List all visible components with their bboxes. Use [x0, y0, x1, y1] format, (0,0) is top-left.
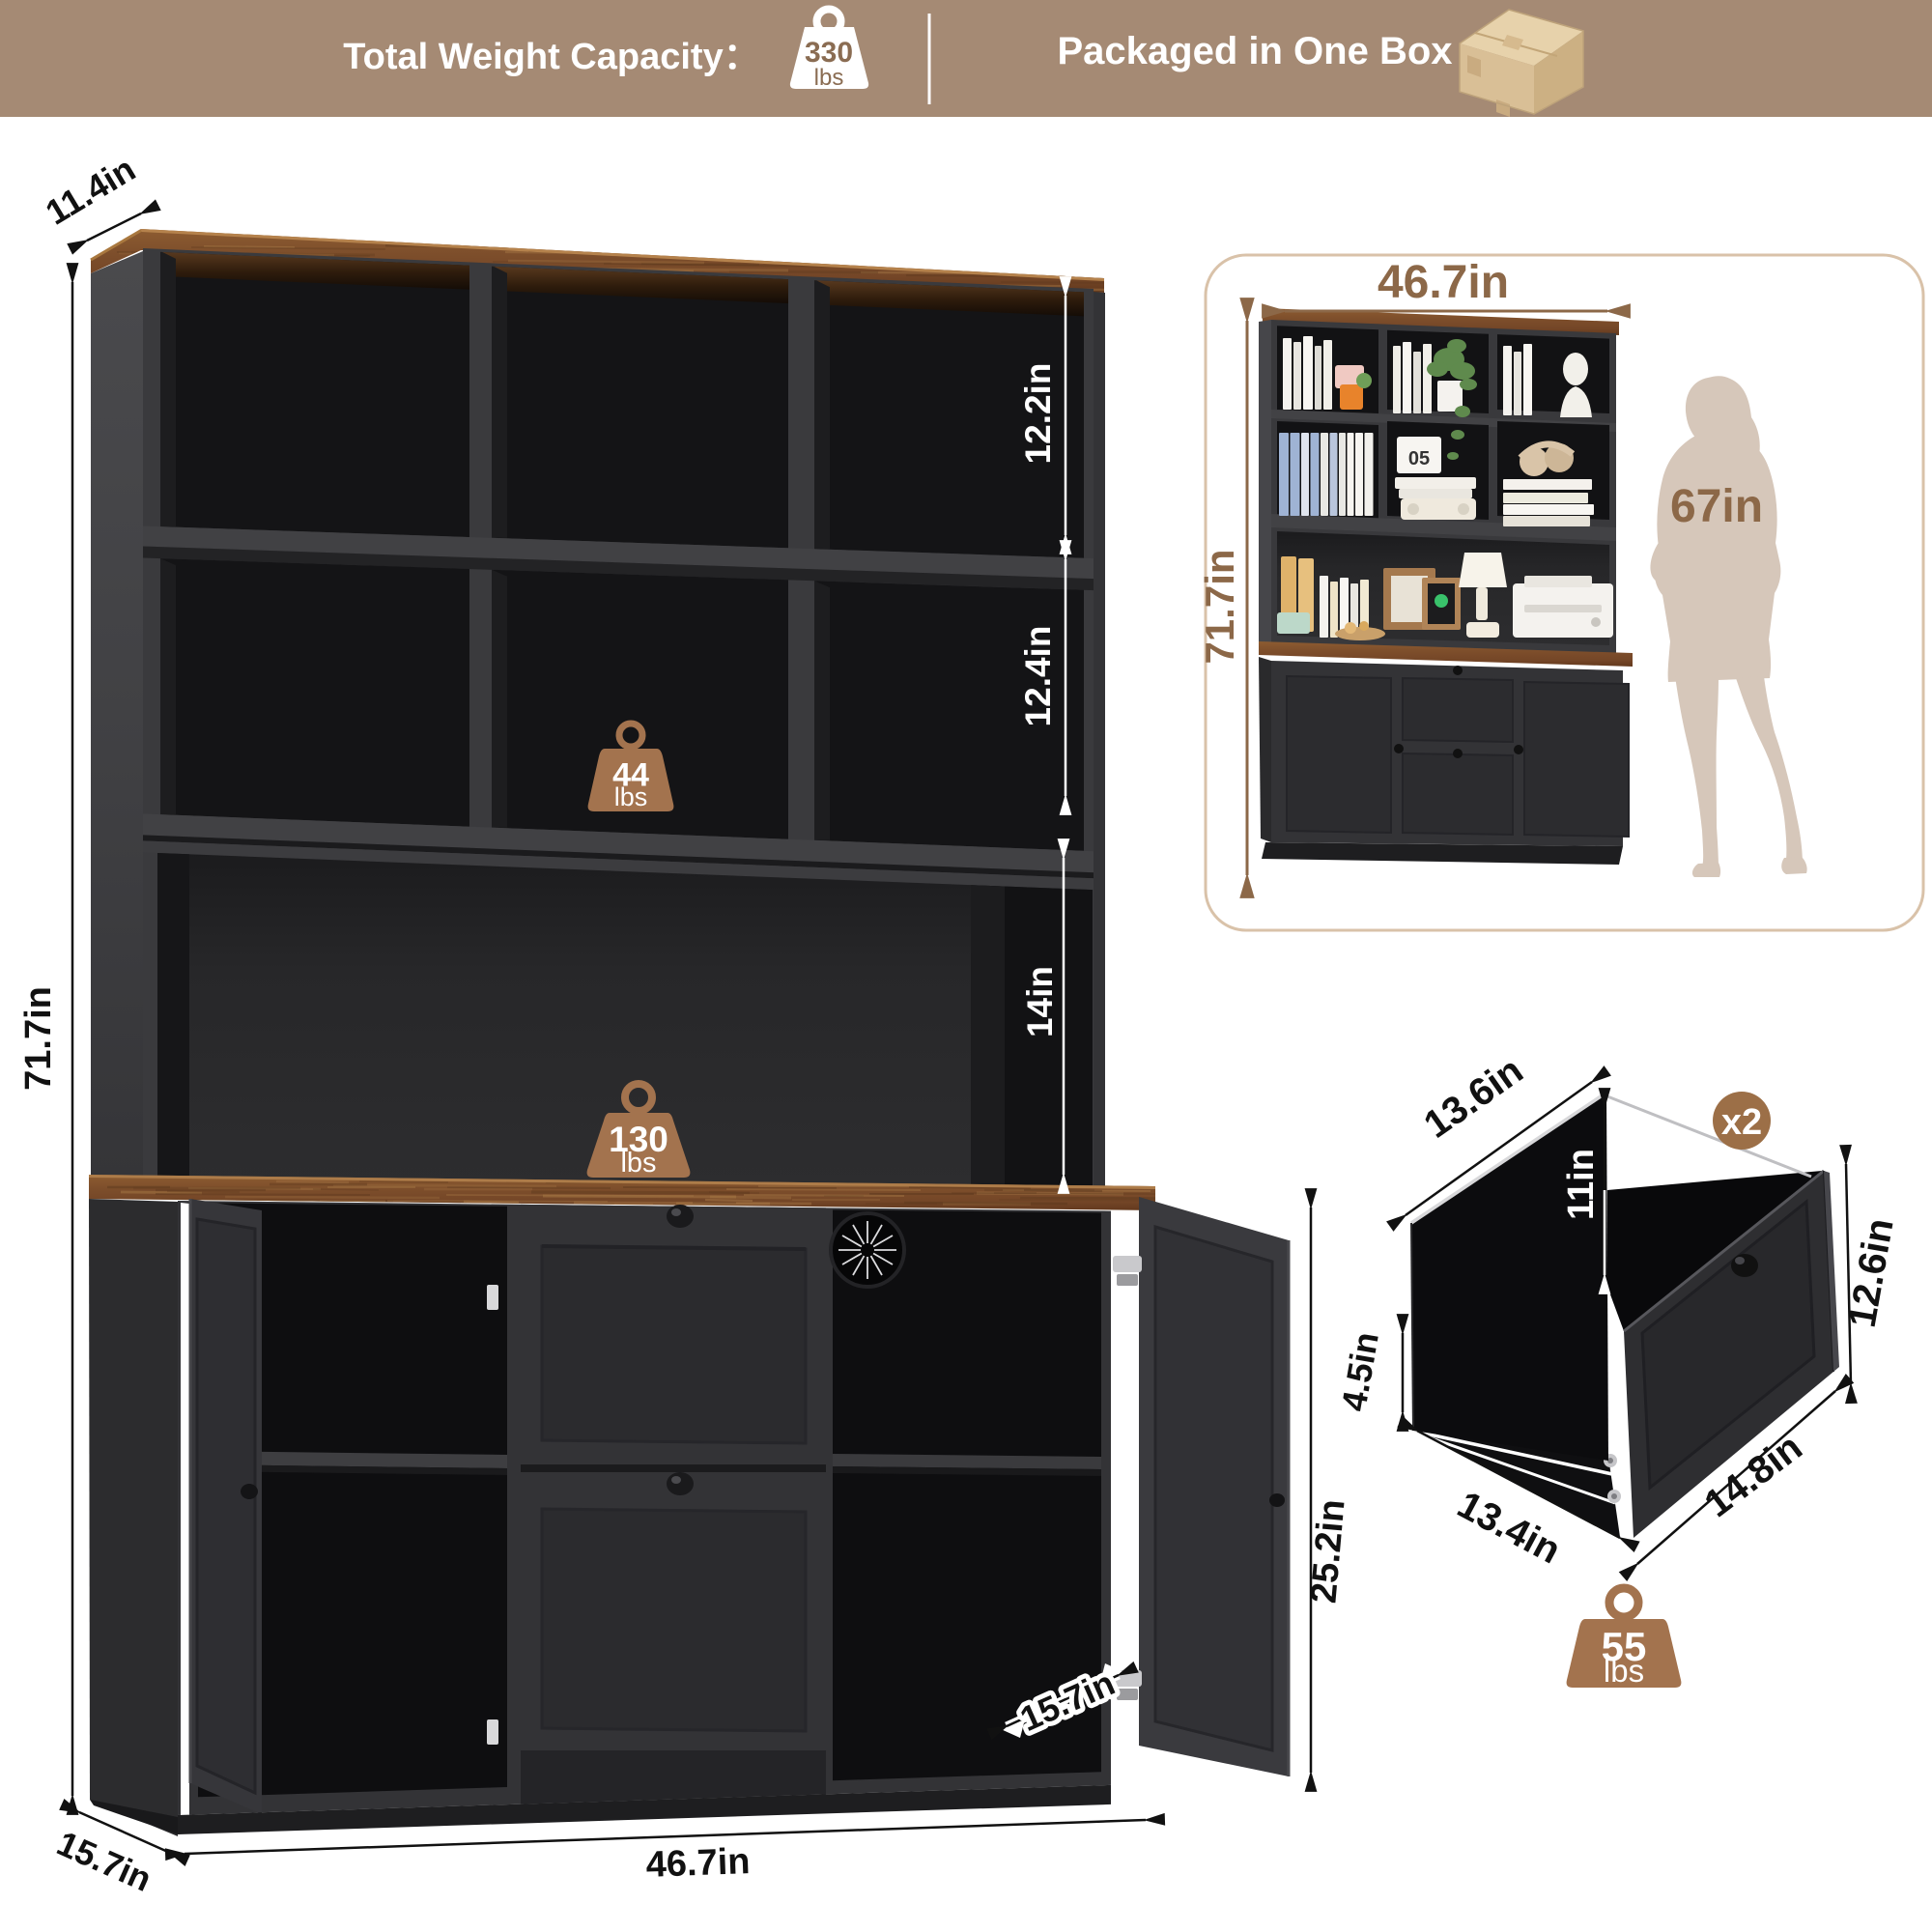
- svg-text:14in: 14in: [1020, 966, 1060, 1037]
- svg-text:x2: x2: [1721, 1102, 1762, 1143]
- svg-text:46.7in: 46.7in: [645, 1841, 751, 1886]
- svg-text:Packaged in One Box: Packaged in One Box: [1057, 30, 1452, 72]
- svg-text:lbs: lbs: [614, 782, 648, 811]
- svg-text:12.6in: 12.6in: [1841, 1215, 1902, 1330]
- svg-text:13.6in: 13.6in: [1416, 1049, 1530, 1147]
- svg-text:12.4in: 12.4in: [1018, 626, 1058, 727]
- svg-text:4.5in: 4.5in: [1333, 1329, 1386, 1414]
- svg-text:71.7in: 71.7in: [1197, 549, 1242, 664]
- svg-text:05: 05: [1408, 448, 1430, 469]
- svg-text:71.7in: 71.7in: [18, 986, 59, 1091]
- svg-text:lbs: lbs: [814, 65, 844, 91]
- svg-text:lbs: lbs: [1604, 1653, 1644, 1689]
- svg-text:12.2in: 12.2in: [1018, 363, 1058, 465]
- svg-text:Total Weight Capacity：: Total Weight Capacity：: [343, 37, 759, 77]
- svg-text:67in: 67in: [1670, 481, 1763, 532]
- svg-text:15.7in: 15.7in: [51, 1823, 157, 1899]
- svg-text:11in: 11in: [1561, 1149, 1602, 1220]
- svg-text:25.2in: 25.2in: [1303, 1497, 1352, 1605]
- svg-text:lbs: lbs: [620, 1148, 656, 1179]
- svg-text:46.7in: 46.7in: [1378, 257, 1509, 308]
